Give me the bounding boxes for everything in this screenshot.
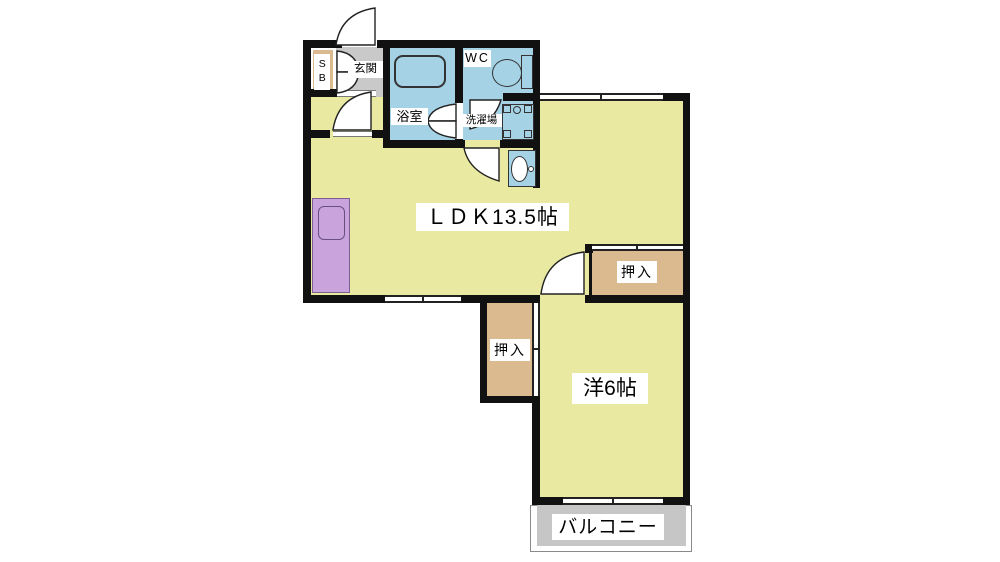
entrance-door-arc <box>336 8 375 45</box>
ldk-label: ＬＤＫ13.5帖 <box>416 203 569 231</box>
laundry-door-arc <box>464 148 499 181</box>
bathroom-door-lower-fold <box>428 121 456 138</box>
wc-label: WC <box>464 50 491 67</box>
hall-door-arc <box>333 92 371 130</box>
door-arcs-layer <box>0 0 1000 562</box>
balcony-label: バルコニー <box>552 514 664 540</box>
bathroom-label: 浴室 <box>391 108 428 125</box>
bathroom-door-upper-fold <box>428 104 456 121</box>
laundry-label: 洗濯場 <box>461 114 502 127</box>
closet-upper-label: 押入 <box>617 261 657 283</box>
western-room-label: 洋6帖 <box>572 373 648 404</box>
shoe-box-label: SB <box>314 54 330 90</box>
closet-lower-label: 押入 <box>490 339 530 361</box>
floor-plan: ＬＤＫ13.5帖 洋6帖 バルコニー 押入 押入 玄関 浴室 WC 洗濯場 SB <box>0 0 1000 562</box>
entrance-label: 玄関 <box>348 61 383 78</box>
bedroom-door-arc <box>541 252 584 294</box>
